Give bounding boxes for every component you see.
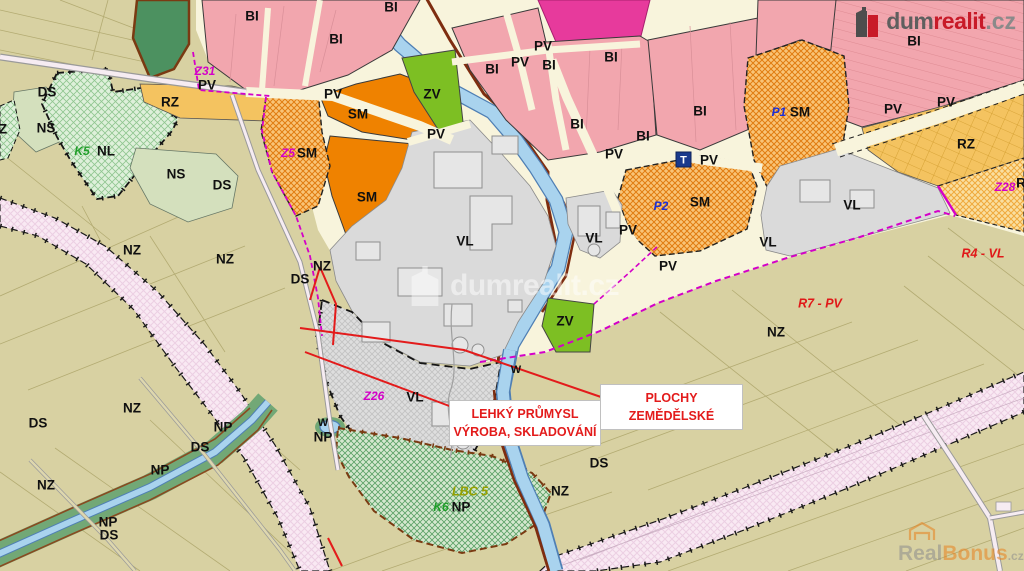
zone-label-r: R — [1016, 176, 1024, 191]
zone-label-pv: PV — [198, 78, 216, 93]
zone-label-sm: SM — [690, 195, 710, 210]
zone-label-np: NP — [151, 463, 170, 478]
zone-label-nz: NZ — [551, 484, 569, 499]
zone-label-pv: PV — [511, 55, 529, 70]
zone-label-rz: RZ — [957, 137, 975, 152]
zone-label-bi: BI — [384, 0, 398, 15]
annotation-agriculture-line2: ZEMĚDĚLSKÉ — [603, 407, 740, 425]
logo-text-realit: realit — [933, 8, 985, 34]
zone-label-ds: DS — [100, 528, 119, 543]
zone-label-vl: VL — [843, 198, 860, 213]
zone-label-bi: BI — [570, 117, 584, 132]
zone-label-vl: VL — [456, 234, 473, 249]
zone-label-ds: DS — [291, 272, 310, 287]
zone-label-r4-vl: R4 - VL — [961, 246, 1004, 260]
zone-label-zv: ZV — [556, 314, 573, 329]
zone-label-pv: PV — [619, 223, 637, 238]
zone-label-vl: VL — [406, 390, 423, 405]
zone-label-bi: BI — [693, 104, 707, 119]
zone-label-pv: PV — [937, 95, 955, 110]
t-infrastructure-icon: T — [676, 152, 691, 167]
zone-label-vl: VL — [585, 231, 602, 246]
annotation-agriculture-line1: PLOCHY — [603, 389, 740, 407]
zone-label-r7-pv: R7 - PV — [798, 296, 843, 310]
zone-label-bi: BI — [604, 50, 618, 65]
zone-label-z26: Z26 — [363, 389, 385, 403]
zone-label-nz: NZ — [123, 401, 141, 416]
annotation-box-industry: LEHKÝ PRŮMYSL VÝROBA, SKLADOVÁNÍ — [449, 400, 601, 446]
zone-label-p1: P1 — [772, 105, 787, 119]
zone-label-z5: Z5 — [280, 146, 295, 160]
zone-label-pv: PV — [534, 39, 552, 54]
zone-label-lbc-5: LBC 5 — [452, 484, 489, 498]
zone-label-nz: NZ — [313, 259, 331, 274]
zone-label-z: Z — [0, 122, 7, 137]
zone-label-sm: SM — [297, 146, 317, 161]
zone-label-nz: NZ — [216, 252, 234, 267]
logo-text-cz: .cz — [985, 8, 1016, 34]
zone-label-pv: PV — [324, 87, 342, 102]
zone-label-ns: NS — [167, 167, 186, 182]
zone-label-bi: BI — [636, 129, 650, 144]
zone-label-sm: SM — [348, 107, 368, 122]
zone-label-nz: NZ — [37, 478, 55, 493]
zone-label-pv: PV — [605, 147, 623, 162]
zone-label-k6: K6 — [433, 500, 449, 514]
zone-label-ds: DS — [590, 456, 609, 471]
zone-label-bi: BI — [542, 58, 556, 73]
zone-label-nl: NL — [97, 144, 115, 159]
map-viewport: T BIBIBIBIBIBIBIBIBIBIPVPVPVPVPVPVPVPVPV… — [0, 0, 1024, 571]
annotation-industry-line2: VÝROBA, SKLADOVÁNÍ — [452, 423, 598, 441]
zone-label-nz: NZ — [123, 243, 141, 258]
dumrealit-logo: dumrealit.cz — [854, 5, 1016, 37]
zone-label-rz: RZ — [161, 95, 179, 110]
zone-label-pv: PV — [659, 259, 677, 274]
dumrealit-logo-icon — [854, 5, 880, 37]
zone-label-k5: K5 — [74, 144, 90, 158]
zone-label-pv: PV — [700, 153, 718, 168]
zone-label-ds: DS — [213, 178, 232, 193]
zone-label-pv: PV — [427, 127, 445, 142]
zone-ov-hotpink — [538, 0, 650, 42]
zone-label-sm: SM — [357, 190, 377, 205]
zone-label-bi: BI — [245, 9, 259, 24]
zone-label-nz: NZ — [767, 325, 785, 340]
zone-label-w: W — [511, 364, 522, 376]
zone-label-pv: PV — [884, 102, 902, 117]
zone-label-np: NP — [452, 500, 471, 515]
zone-label-w: W — [318, 417, 329, 429]
zone-label-z28: Z28 — [994, 180, 1016, 194]
zone-label-sm: SM — [790, 105, 810, 120]
zone-label-bi: BI — [485, 62, 499, 77]
logo-text-dum: dum — [886, 8, 933, 34]
zone-label-np: NP — [99, 515, 118, 530]
zone-label-ds: DS — [29, 416, 48, 431]
zone-label-ds: DS — [191, 440, 210, 455]
zoning-map-image: T BIBIBIBIBIBIBIBIBIBIPVPVPVPVPVPVPVPVPV… — [0, 0, 1024, 571]
t-icon-letter: T — [680, 154, 687, 166]
zone-label-np: NP — [314, 430, 333, 445]
annotation-industry-line1: LEHKÝ PRŮMYSL — [452, 405, 598, 423]
zone-label-ds: DS — [38, 85, 57, 100]
zone-label-p2: P2 — [654, 199, 669, 213]
zone-label-ns: NS — [37, 121, 56, 136]
zone-label-z31: Z31 — [194, 64, 216, 78]
zone-label-bi: BI — [329, 32, 343, 47]
zone-label-np: NP — [214, 420, 233, 435]
zone-label-zv: ZV — [423, 87, 440, 102]
zone-label-vl: VL — [759, 235, 776, 250]
annotation-box-agriculture: PLOCHY ZEMĚDĚLSKÉ — [600, 384, 743, 430]
